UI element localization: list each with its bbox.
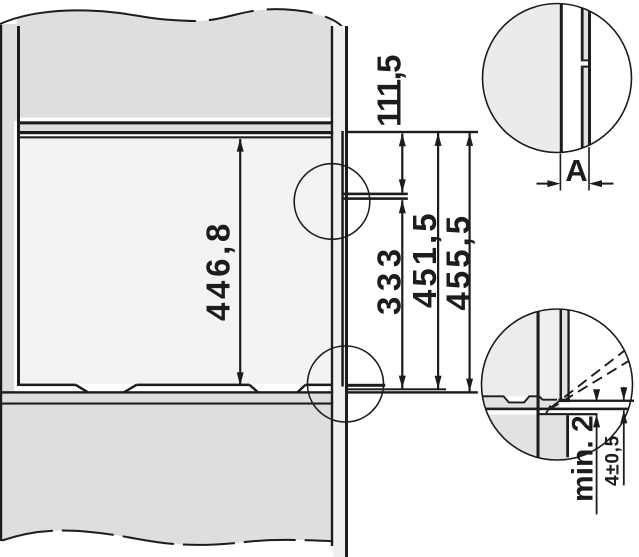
svg-text:451,5: 451,5: [406, 210, 443, 308]
svg-text:446,8: 446,8: [200, 220, 237, 321]
svg-text:A: A: [565, 153, 587, 188]
svg-text:111,5: 111,5: [371, 55, 408, 127]
svg-text:455,5: 455,5: [440, 213, 477, 311]
svg-text:min. 2: min. 2: [567, 415, 600, 502]
svg-text:333: 333: [371, 243, 408, 315]
svg-text:4±0,5: 4±0,5: [603, 435, 624, 486]
